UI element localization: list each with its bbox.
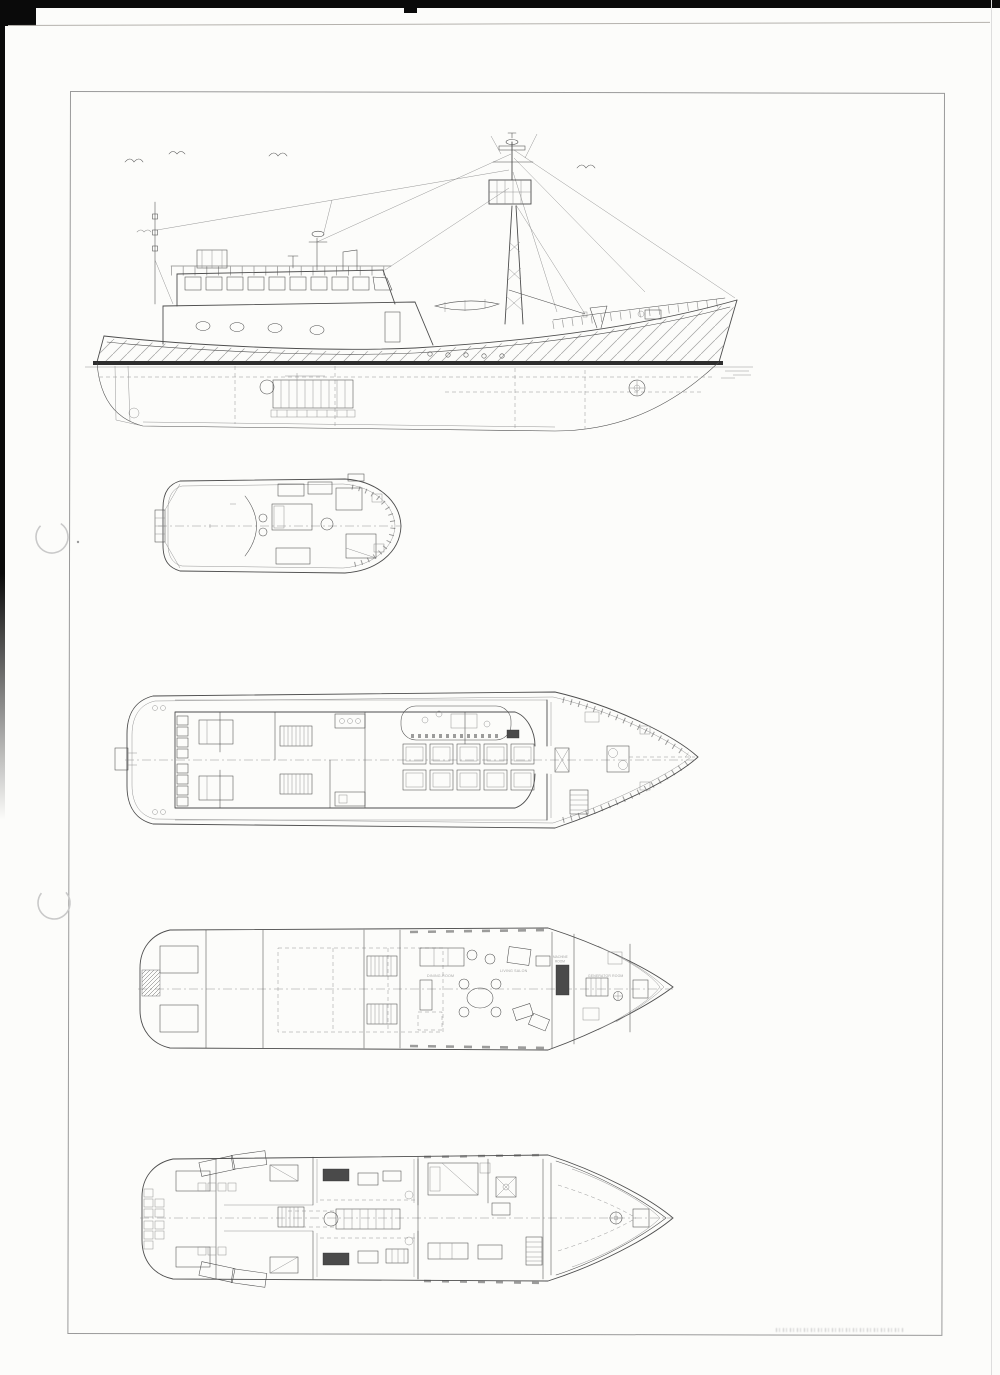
scan-tab-mark-2 (766, 0, 778, 8)
scan-top-bar (0, 0, 1000, 8)
salon-deck-plan: DINING-ROOM LIVING SALON MACHINE ROOM GE… (128, 920, 688, 1060)
dinette-area (401, 706, 519, 740)
side-elevation-view (85, 130, 755, 440)
hole-punch-bottom (20, 868, 110, 958)
label-machine-room-2: ROOM (555, 960, 565, 964)
scanned-drawing-page: DINING-ROOM LIVING SALON MACHINE ROOM GE… (0, 0, 1000, 1375)
tank-lines (99, 366, 715, 430)
waterline-band (93, 361, 723, 365)
owner-stateroom (418, 1155, 551, 1283)
bridge-deck-plan (150, 474, 405, 579)
lower-deck-outline (140, 1155, 673, 1281)
label-living-salon: LIVING SALON (500, 969, 528, 973)
water-strokes (721, 371, 751, 378)
main-engine-plan (288, 1209, 400, 1229)
bridge-interior (210, 482, 384, 564)
hole-punch-top (20, 500, 110, 590)
salon-deck-outline (138, 928, 673, 1050)
crew-cabins (198, 1151, 313, 1288)
label-dining-room: DINING-ROOM (427, 974, 454, 978)
main-engine-profile (260, 373, 355, 417)
scan-left-edge (0, 0, 5, 820)
lower-deck-plan (128, 1145, 688, 1295)
stern-antenna-mast (153, 202, 174, 304)
lazarette (144, 1159, 216, 1279)
bow-thruster (629, 380, 645, 396)
scan-corner-block (0, 0, 36, 26)
rigging-lines (157, 150, 735, 314)
label-machine-room-1: MACHINE (553, 955, 568, 959)
footer-annotation-scribble (776, 1328, 904, 1332)
hatch-grid (403, 744, 534, 790)
superstructure (153, 200, 434, 345)
main-deck-plan (115, 686, 715, 834)
hold-outline-dashed (278, 948, 443, 1032)
paper-right-edge (991, 0, 992, 1375)
label-generator-room: GENERATOR ROOM (588, 974, 623, 978)
underwater-profile (97, 362, 719, 431)
oval-windows (196, 322, 324, 335)
page-top-rule (8, 22, 990, 26)
wheelhouse-windows (185, 277, 392, 290)
machinery-compartments (552, 932, 648, 1048)
seagulls (125, 152, 595, 233)
roof-equipment (197, 200, 357, 270)
bridge-deck-outline (158, 479, 401, 573)
scan-tab-mark (404, 0, 417, 13)
main-mast (489, 133, 587, 324)
deck3-room-labels: DINING-ROOM LIVING SALON MACHINE ROOM GE… (427, 955, 623, 978)
